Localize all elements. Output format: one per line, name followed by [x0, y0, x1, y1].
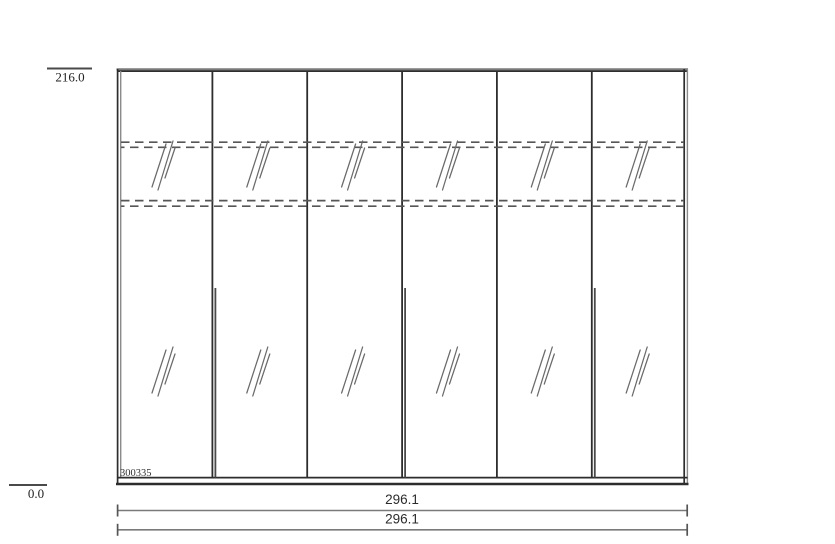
- wardrobe-elevation-drawing: 216.0 0.0: [0, 0, 835, 544]
- glass-hatch-icon: [342, 347, 365, 396]
- drawing-canvas: 216.0 0.0: [0, 0, 835, 544]
- glass-hatch-icon: [152, 141, 175, 190]
- handle-bars: [215, 288, 594, 478]
- width-dimension-secondary: 296.1: [118, 512, 688, 536]
- door-dividers: [212, 71, 591, 478]
- glass-hatches-lower: [152, 347, 649, 396]
- height-marker-bottom: 0.0: [9, 485, 47, 501]
- glass-hatch-icon: [247, 141, 270, 190]
- width-dimension-secondary-label: 296.1: [385, 512, 419, 527]
- height-bottom-label: 0.0: [28, 486, 44, 501]
- item-code-label: 300335: [120, 468, 152, 479]
- glass-hatch-icon: [531, 141, 554, 190]
- glass-hatches-upper: [152, 141, 649, 190]
- height-marker-top: 216.0: [47, 69, 92, 85]
- height-top-label: 216.0: [55, 70, 84, 85]
- glass-hatch-icon: [247, 347, 270, 396]
- glass-hatch-icon: [626, 141, 649, 190]
- glass-hatch-icon: [437, 347, 460, 396]
- width-dimension-primary-label: 296.1: [385, 492, 419, 507]
- glass-hatch-icon: [152, 347, 175, 396]
- glass-hatch-icon: [437, 141, 460, 190]
- glass-hatch-icon: [626, 347, 649, 396]
- glass-hatch-icon: [531, 347, 554, 396]
- glass-hatch-icon: [342, 141, 365, 190]
